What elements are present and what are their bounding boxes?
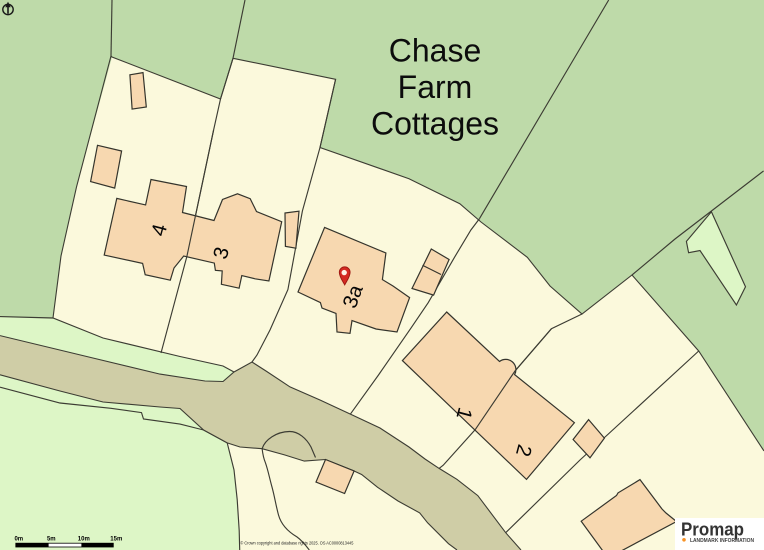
- svg-text:LANDMARK INFORMATION: LANDMARK INFORMATION: [690, 538, 754, 544]
- svg-text:Farm: Farm: [398, 69, 473, 105]
- svg-text:15m: 15m: [110, 537, 122, 543]
- svg-text:0m: 0m: [14, 537, 23, 543]
- svg-text:5m: 5m: [47, 537, 56, 543]
- svg-text:Chase: Chase: [389, 33, 482, 69]
- svg-text:Cottages: Cottages: [371, 106, 499, 142]
- svg-text:10m: 10m: [78, 537, 90, 543]
- svg-text:© Crown copyright and database: © Crown copyright and database rights 20…: [240, 540, 353, 546]
- svg-text:Promap: Promap: [681, 519, 744, 540]
